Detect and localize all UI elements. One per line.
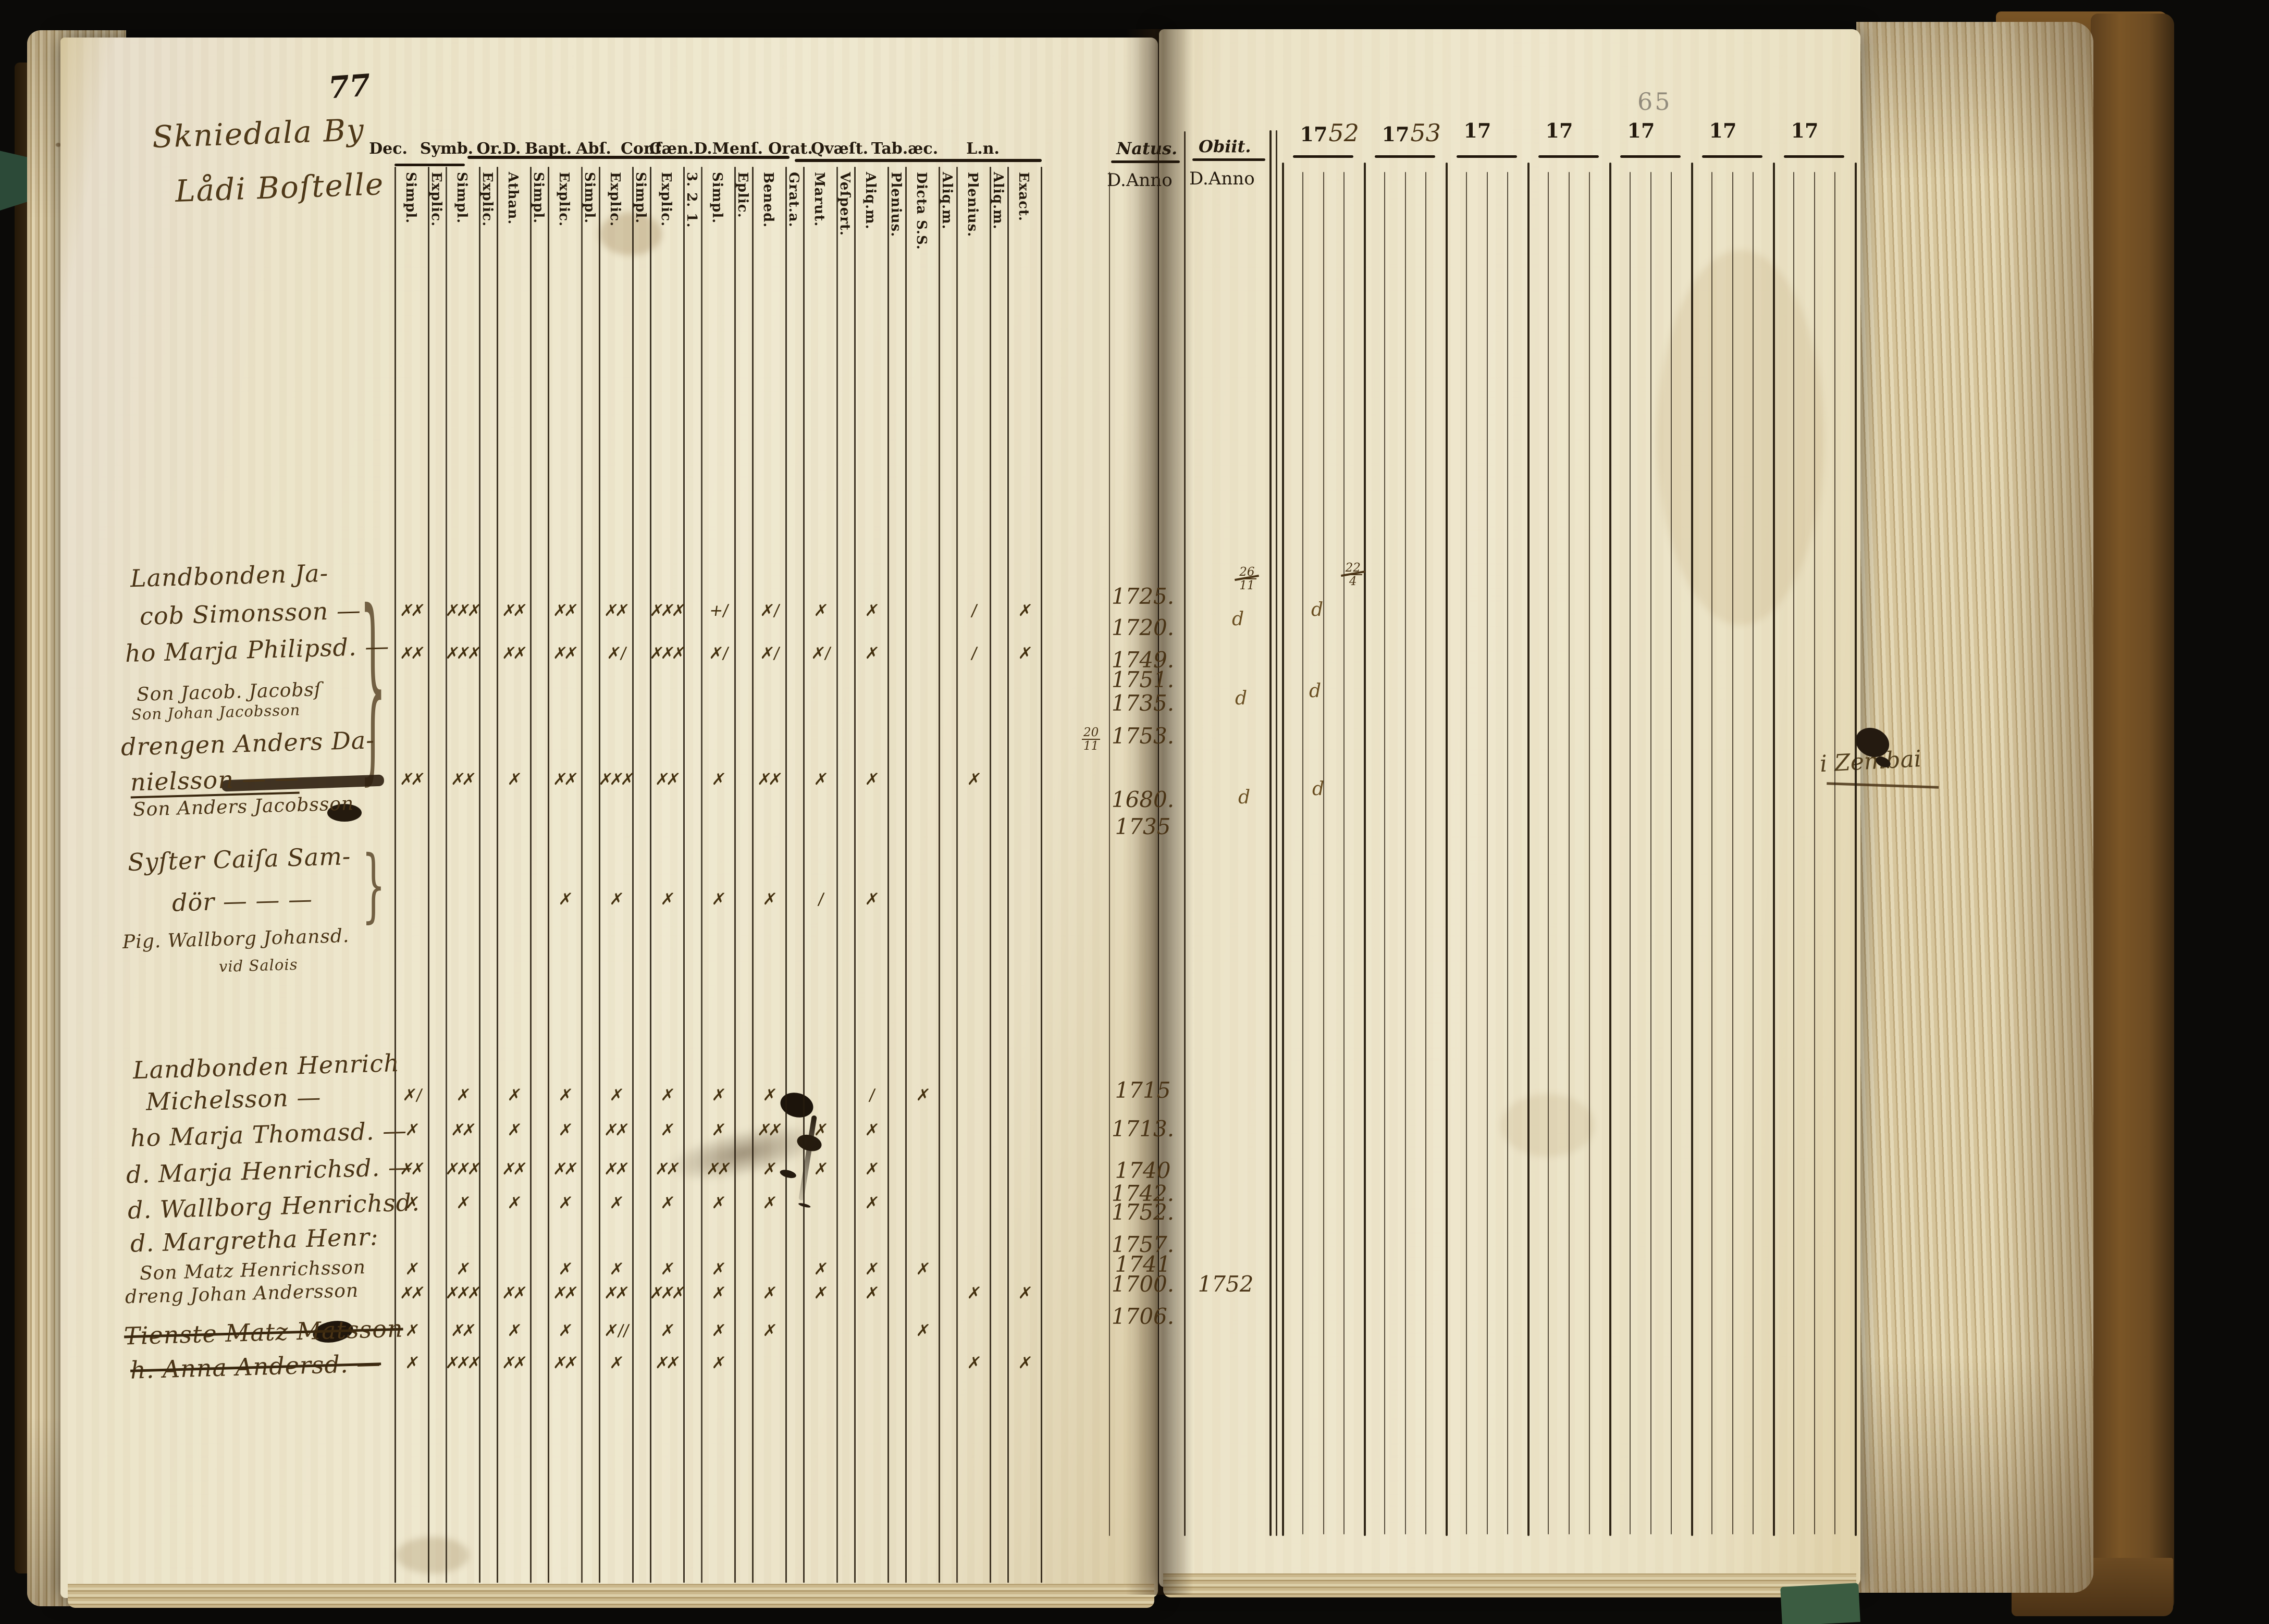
mark-row: ✗✗✗✗✗✗✗✗✗✗ /✗✗✗✗ /✗ /✗ /✗/✗ [394, 642, 1041, 665]
table-subcolumn-label: Marut. [811, 172, 827, 227]
mark-cell: ✗ [1006, 642, 1042, 665]
mark-cell [1006, 1084, 1042, 1107]
mark-cell: ✗ [546, 888, 583, 911]
right-table-rule [1269, 130, 1272, 1536]
mark-cell: ✗ [750, 1084, 787, 1107]
table-subcolumn-label: Explic. [658, 172, 674, 227]
natus-year: 1713. [1104, 1116, 1182, 1142]
mark-cell [955, 1319, 991, 1342]
year-column-rule [1446, 163, 1448, 1536]
register-row-name: Landbonden Ja- [130, 559, 329, 593]
mark-cell: ✗ [1006, 1352, 1042, 1374]
mark-cell: ✗ / [699, 642, 736, 665]
table-subcolumn-label: Bened. [760, 172, 776, 228]
mark-cell: ✗ [853, 1258, 889, 1281]
right-table-rule [1276, 130, 1277, 1536]
mark-row: ✗✗✗✗✗✗✗✗✗ [394, 1258, 1041, 1281]
mark-cell: ✗ [853, 599, 889, 622]
mark-row: ✗ /✗✗✗✗✗✗✗/✗ [394, 1084, 1041, 1107]
year-header-underline [1702, 155, 1762, 158]
mark-cell: ✗✗ [393, 1282, 429, 1305]
mark-cell [801, 1352, 838, 1374]
year-subcolumn-rule [1425, 172, 1426, 1534]
natus-year: 1715 [1104, 1077, 1182, 1103]
mark-cell: / [853, 1084, 889, 1107]
register-row-name: dreng Johan Andersson [125, 1280, 359, 1308]
table-group-header: L.n. [966, 140, 1000, 158]
mark-cell: ✗✗✗ [444, 1282, 480, 1305]
table-subcolumn-label: Aliq.m. [990, 172, 1006, 230]
table-subcolumn-label: Veſpert. [837, 172, 853, 236]
mark-cell [904, 1158, 940, 1181]
year-column-rule [1527, 163, 1530, 1536]
mark-cell: ✗ [393, 1192, 429, 1214]
mark-cell: ✗ / [750, 599, 787, 622]
mark-cell: ✗ [495, 1192, 532, 1214]
mark-cell: ✗ [546, 1258, 583, 1281]
mark-cell [904, 642, 940, 665]
mark-cell: ✗✗ [750, 1119, 787, 1142]
register-row-name: Son Matz Henrichsson [140, 1257, 366, 1284]
natus-year: 1720. [1104, 615, 1182, 640]
mark-cell: ✗ [699, 1319, 736, 1342]
mark-cell [801, 1084, 838, 1107]
mark-cell: ✗✗ [444, 768, 480, 791]
mark-cell: ✗ [750, 1282, 787, 1305]
mark-cell: ✗ [853, 642, 889, 665]
register-row-name: dör — — — [171, 885, 313, 917]
mark-cell: ✗✗ [597, 1282, 634, 1305]
ditto-mark: d [1309, 680, 1321, 702]
table-subcolumn-label: 3. 2. 1. [684, 172, 699, 228]
mark-row: ✗✗✗✗✗✗✗✗✗✗✗✗✗✗✗✗✗✗ [394, 1158, 1041, 1181]
natus-date-fraction: 2011 [1082, 726, 1100, 752]
table-group-header: Dec. [369, 140, 408, 158]
natus-year: 1735 [1104, 814, 1182, 839]
mark-row: ✗✗✗✗✗✗ / /✗✗✗✗ [394, 1319, 1041, 1342]
mark-cell: ✗ [495, 1084, 532, 1107]
content-overlay: Dec.Symb.Or.D.Bapt.Abſ.Conf.Cæn.D.Menſ.O… [0, 0, 2269, 1624]
mark-cell: ✗ [444, 1192, 480, 1214]
mark-cell: ✗ [648, 1319, 685, 1342]
year-header-handwritten: 52 [1328, 119, 1359, 147]
mark-cell: ✗ [648, 1084, 685, 1107]
mark-cell: ✗ [853, 1158, 889, 1181]
mark-cell: ✗✗ [546, 768, 583, 791]
mark-row: ✗✗✗✗✗/✗ [394, 888, 1041, 911]
register-row-name: Syſter Caiſa Sam- [127, 842, 351, 876]
mark-cell: ✗ [546, 1192, 583, 1214]
mark-cell: ✗ [801, 768, 838, 791]
year-subcolumn-rule [1343, 172, 1345, 1534]
crossed-date-fraction: 2611 [1238, 566, 1256, 592]
mark-cell: ✗ [904, 1319, 940, 1342]
table-subcolumn-label: Simpl. [454, 172, 470, 224]
mark-cell [904, 768, 940, 791]
mark-cell [1006, 1319, 1042, 1342]
ditto-mark: d [1232, 609, 1244, 630]
mark-cell: ✗ [801, 1158, 838, 1181]
mark-cell: ✗✗✗ [648, 599, 685, 622]
table-column-rule [1041, 167, 1042, 1583]
register-row-name: h. Anna Andersd. — [130, 1349, 381, 1384]
mark-cell [1006, 1192, 1042, 1214]
year-subcolumn-rule [1507, 172, 1508, 1534]
table-subcolumn-label: Dicta S.S. [914, 172, 929, 250]
mark-cell: ✗ [648, 1258, 685, 1281]
mark-cell [444, 888, 480, 911]
table-group-header: Qvæſt. [811, 140, 868, 158]
year-column-rule [1364, 163, 1366, 1536]
year-header-handwritten: 53 [1410, 119, 1441, 147]
mark-cell [1006, 888, 1042, 911]
ditto-mark: d [1312, 778, 1324, 800]
table-subcolumn-label: Explic. [556, 172, 572, 227]
mark-row: ✗✗✗✗✗✗✗✗✗✗✗✗✗✗+ /✗ /✗✗/✗ [394, 599, 1041, 622]
mark-cell: ✗ [750, 1158, 787, 1181]
table-subcolumn-label: Simpl. [582, 172, 597, 224]
mark-row: ✗✗✗✗✗✗✗✗✗✗✗✗✗✗✗✗✗✗ [394, 768, 1041, 791]
table-subcolumn-label: Simpl. [531, 172, 546, 224]
year-subcolumn-rule [1569, 172, 1570, 1534]
mark-cell: ✗ [801, 1258, 838, 1281]
natus-year: 1725. [1104, 584, 1182, 609]
mark-cell: ✗ / [801, 642, 838, 665]
mark-row: ✗✗✗✗✗✗✗✗✗✗✗✗✗✗ [394, 1352, 1041, 1374]
mark-cell [495, 888, 532, 911]
natus-year: 1735. [1104, 690, 1182, 716]
year-header-underline [1538, 155, 1599, 158]
mark-cell [955, 1258, 991, 1281]
mark-cell: ✗ [955, 1282, 991, 1305]
mark-cell: ✗ [648, 1119, 685, 1142]
year-header-underline [1457, 155, 1517, 158]
mark-cell: ✗ [699, 1352, 736, 1374]
table-subcolumn-label: Explic. [428, 172, 444, 227]
year-subcolumn-rule [1384, 172, 1385, 1534]
year-header-printed: 17 [1382, 122, 1410, 146]
mark-cell: ✗ [393, 1352, 429, 1374]
mark-cell: ✗ [444, 1258, 480, 1281]
mark-cell [904, 1282, 940, 1305]
mark-cell: ✗ [955, 1352, 991, 1374]
mark-cell: ✗ [955, 768, 991, 791]
year-column-rule [1773, 163, 1775, 1536]
mark-cell: ✗✗✗ [648, 1282, 685, 1305]
year-subcolumn-rule [1650, 172, 1651, 1534]
register-row-name: d. Margretha Henr: [130, 1222, 379, 1257]
register-row-name: d. Wallborg Henrichsd. [127, 1188, 420, 1224]
year-header: 17 [1464, 119, 1491, 142]
register-row-name: ho Marja Philipsd. — [125, 632, 390, 667]
year-subcolumn-rule [1589, 172, 1590, 1534]
year-subcolumn-rule [1814, 172, 1815, 1534]
year-subcolumn-rule [1548, 172, 1549, 1534]
mark-cell: ✗✗✗ [648, 642, 685, 665]
year-header: 1752 [1300, 119, 1359, 147]
mark-cell: ✗✗ [750, 768, 787, 791]
mark-row: ✗✗✗✗✗✗✗✗✗✗✗✗✗ [394, 1119, 1041, 1142]
mark-cell: ✗✗ [597, 1119, 634, 1142]
mark-cell: ✗✗ [546, 1158, 583, 1181]
mark-cell [393, 888, 429, 911]
mark-cell: ✗ [904, 1258, 940, 1281]
mark-cell: ✗ [699, 888, 736, 911]
mark-cell [801, 1192, 838, 1214]
mark-cell: ✗✗✗ [444, 1352, 480, 1374]
year-header-printed: 17 [1791, 119, 1819, 142]
mark-cell: ✗ [699, 1192, 736, 1214]
year-subcolumn-rule [1671, 172, 1672, 1534]
mark-cell: ✗ [597, 1192, 634, 1214]
year-header: 17 [1546, 119, 1573, 142]
mark-cell: ✗ [801, 1119, 838, 1142]
mark-row: ✗✗✗✗✗✗✗✗✗✗✗✗✗✗✗✗✗✗✗✗ [394, 1282, 1041, 1305]
table-subcolumn-label: Grat.a. [786, 172, 801, 228]
mark-cell: ✗✗ [495, 599, 532, 622]
mark-cell: ✗ [853, 1192, 889, 1214]
year-subcolumn-rule [1711, 172, 1712, 1534]
year-column-rule [1282, 163, 1284, 1536]
mark-cell: ✗✗ [597, 599, 634, 622]
mark-cell: ✗ [495, 768, 532, 791]
register-row-name: Pig. Wallborg Johansd. [122, 925, 350, 953]
year-column-rule [1855, 163, 1857, 1536]
year-header-underline [1293, 155, 1353, 158]
year-subcolumn-rule [1732, 172, 1733, 1534]
year-header: 17 [1709, 119, 1737, 142]
mark-cell: ✗ [597, 1258, 634, 1281]
year-subcolumn-rule [1466, 172, 1467, 1534]
mark-cell: ✗ [393, 1258, 429, 1281]
mark-cell: ✗✗ [444, 1319, 480, 1342]
year-header-underline [1784, 155, 1844, 158]
natus-year: 1740 [1104, 1158, 1182, 1183]
mark-cell: ✗ [750, 1192, 787, 1214]
table-subcolumn-label: Plenius. [888, 172, 904, 237]
mark-cell: ✗ [597, 888, 634, 911]
crossed-date-fraction: 224 [1344, 562, 1362, 588]
mark-cell: ✗ [546, 1119, 583, 1142]
year-header: 1753 [1382, 119, 1441, 147]
mark-cell [904, 1352, 940, 1374]
mark-cell: ✗ / [597, 642, 634, 665]
ditto-mark: d [1238, 787, 1250, 808]
mark-cell: ✗ [699, 768, 736, 791]
mark-cell: ✗ / [393, 1084, 429, 1107]
mark-cell: ✗ / / [597, 1319, 634, 1342]
table-subcolumn-label: Simpl. [709, 172, 725, 224]
mark-cell: ✗ [750, 1319, 787, 1342]
mark-cell: ✗ [699, 1282, 736, 1305]
mark-cell [955, 1158, 991, 1181]
mark-cell: ✗ / [750, 642, 787, 665]
mark-cell: ✗ [853, 1282, 889, 1305]
mark-cell [750, 1258, 787, 1281]
mark-cell [1006, 1258, 1042, 1281]
mark-cell: ✗ [1006, 599, 1042, 622]
year-header: 17 [1791, 119, 1819, 142]
year-subcolumn-rule [1793, 172, 1794, 1534]
mark-cell: ✗ [853, 768, 889, 791]
mark-cell: ✗ [699, 1084, 736, 1107]
mark-cell: ✗ [750, 888, 787, 911]
mark-cell [904, 1192, 940, 1214]
year-header-printed: 17 [1709, 119, 1737, 142]
mark-cell: ✗ [1006, 1282, 1042, 1305]
mark-cell: ✗✗ [495, 1282, 532, 1305]
mark-cell: ✗✗ [546, 1282, 583, 1305]
mark-cell: ✗✗ [393, 1158, 429, 1181]
mark-cell: ✗✗ [699, 1158, 736, 1181]
mark-cell: ✗ [853, 1119, 889, 1142]
register-row-name: vid Salois [219, 956, 298, 975]
mark-cell: ✗✗ [546, 599, 583, 622]
mark-cell: ✗✗ [648, 1352, 685, 1374]
register-row-name: drengen Anders Da- [120, 726, 375, 761]
mark-cell: ✗ [546, 1319, 583, 1342]
mark-cell: ✗✗ [495, 1352, 532, 1374]
right-table-rule [1109, 172, 1110, 1536]
mark-cell [1006, 1158, 1042, 1181]
mark-cell: ✗ [853, 888, 889, 911]
mark-cell: ✗ [444, 1084, 480, 1107]
year-column-rule [1609, 163, 1611, 1536]
table-subcolumn-label: Exact. [1016, 172, 1031, 221]
mark-cell: ✗ [648, 888, 685, 911]
mark-cell: ✗✗ [597, 1158, 634, 1181]
mark-cell: ✗ [597, 1352, 634, 1374]
year-subcolumn-rule [1323, 172, 1324, 1534]
mark-cell: ✗ [801, 599, 838, 622]
mark-row: ✗✗✗✗✗✗✗✗✗ [394, 1192, 1041, 1214]
register-row-name: Michelsson — [145, 1083, 322, 1115]
year-header-underline [1620, 155, 1681, 158]
table-group-header: Abſ. [576, 140, 611, 158]
mark-cell: ✗✗ [495, 1158, 532, 1181]
year-header-printed: 17 [1627, 119, 1655, 142]
mark-cell: ✗✗✗ [597, 768, 634, 791]
mark-cell: ✗✗ [648, 1158, 685, 1181]
natus-year: 1680. [1104, 787, 1182, 812]
table-subcolumn-label: Plenius. [965, 172, 980, 237]
natus-year: 1751. [1104, 667, 1182, 692]
mark-cell: ✗ [904, 1084, 940, 1107]
mark-cell [904, 888, 940, 911]
table-subcolumn-label: Simpl. [633, 172, 648, 224]
mark-cell: ✗✗ [444, 1119, 480, 1142]
year-header-printed: 17 [1464, 119, 1491, 142]
table-group-header: Cæn.D.Menſ. [649, 140, 763, 158]
year-subcolumn-rule [1487, 172, 1488, 1534]
table-group-header: Or.D. [476, 140, 521, 158]
mark-cell [853, 1352, 889, 1374]
table-subcolumn-label: Athan. [505, 172, 521, 225]
register-row-name: Tienste Matz Matsson [124, 1315, 403, 1350]
mark-cell: ✗ [495, 1319, 532, 1342]
mark-cell: ✗✗ [546, 642, 583, 665]
mark-cell [955, 1084, 991, 1107]
year-header: 17 [1627, 119, 1655, 142]
right-table-rule [1184, 131, 1186, 1536]
table-group-header: Orat. [768, 140, 813, 158]
year-subcolumn-rule [1302, 172, 1303, 1534]
mark-cell: ✗✗✗ [444, 642, 480, 665]
mark-cell [801, 1319, 838, 1342]
ditto-mark: d [1235, 688, 1247, 709]
mark-cell: ✗✗ [546, 1352, 583, 1374]
natus-year: 1752. [1104, 1199, 1182, 1225]
book-photo: 77 Skniedala By Lådi Boſtelle 65 Natus. … [0, 0, 2269, 1624]
year-subcolumn-rule [1834, 172, 1835, 1534]
register-row-name: Landbonden Henrich [132, 1049, 400, 1084]
mark-cell: ✗✗ [393, 768, 429, 791]
table-group-header: Bapt. [525, 140, 572, 158]
register-row-name: nielsson — — [130, 763, 300, 798]
mark-cell [955, 1192, 991, 1214]
register-row-name: d. Marja Henrichsd. — [126, 1152, 413, 1188]
natus-year: 1700. [1104, 1271, 1182, 1297]
mark-cell [750, 1352, 787, 1374]
mark-cell: ✗ [393, 1119, 429, 1142]
register-row-name: cob Simonsson — [139, 596, 361, 630]
year-header-underline [1375, 155, 1435, 158]
table-subcolumn-label: Simpl. [403, 172, 418, 224]
mark-cell: / [801, 888, 838, 911]
year-header-printed: 17 [1546, 119, 1573, 142]
mark-cell [853, 1319, 889, 1342]
table-subcolumn-label: Explic. [607, 172, 623, 227]
mark-cell [955, 888, 991, 911]
natus-year: 1706. [1104, 1304, 1182, 1329]
mark-cell: + / [699, 599, 736, 622]
table-subcolumn-label: Aliq.m. [862, 172, 878, 230]
table-group-header: Symb. [420, 140, 473, 158]
table-subcolumn-label: Aliq.m. [939, 172, 955, 230]
year-header-printed: 17 [1300, 122, 1328, 146]
year-column-rule [1691, 163, 1693, 1536]
mark-cell [904, 1119, 940, 1142]
mark-cell: ✗ [699, 1258, 736, 1281]
obiit-year: 1752 [1189, 1271, 1262, 1297]
mark-cell: ✗ [495, 1119, 532, 1142]
mark-cell [495, 1258, 532, 1281]
year-subcolumn-rule [1405, 172, 1406, 1534]
mark-cell [955, 1119, 991, 1142]
table-subcolumn-label: Eplic. [735, 172, 750, 218]
mark-cell: ✗ [648, 1192, 685, 1214]
mark-cell: ✗✗✗ [444, 599, 480, 622]
ditto-mark: d [1311, 599, 1323, 621]
mark-cell: ✗✗ [648, 768, 685, 791]
mark-cell: ✗ [801, 1282, 838, 1305]
table-group-header: Tab.æc. [871, 140, 938, 158]
mark-cell: ✗✗ [393, 642, 429, 665]
natus-year: 1753. [1104, 723, 1182, 749]
mark-cell: / [955, 642, 991, 665]
register-row-name: ho Marja Thomasd. — [130, 1117, 407, 1152]
mark-cell: / [955, 599, 991, 622]
mark-cell: ✗ [393, 1319, 429, 1342]
mark-cell: ✗ [699, 1119, 736, 1142]
table-subcolumn-label: Explic. [479, 172, 495, 227]
mark-cell: ✗✗ [393, 599, 429, 622]
mark-cell: ✗✗ [495, 642, 532, 665]
mark-cell: ✗ [597, 1084, 634, 1107]
year-subcolumn-rule [1753, 172, 1754, 1534]
mark-cell [1006, 768, 1042, 791]
mark-cell [904, 599, 940, 622]
